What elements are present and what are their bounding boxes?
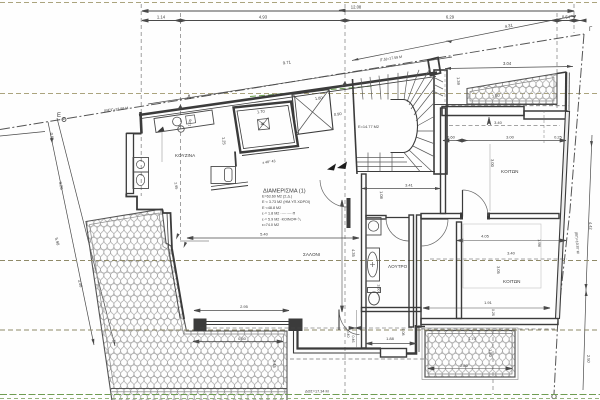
svg-text:3.00: 3.00 bbox=[506, 135, 515, 140]
svg-text:ΛOYTPO: ΛOYTPO bbox=[388, 264, 408, 269]
svg-text:1.14: 1.14 bbox=[157, 14, 166, 19]
svg-text:0.40: 0.40 bbox=[346, 330, 350, 337]
svg-text:0.25: 0.25 bbox=[491, 309, 495, 316]
svg-text:KOYZINA: KOYZINA bbox=[175, 153, 196, 158]
svg-text:2.50: 2.50 bbox=[586, 355, 591, 364]
svg-text:1.08: 1.08 bbox=[379, 191, 384, 200]
svg-text:0.50: 0.50 bbox=[238, 336, 247, 341]
svg-text:3.05: 3.05 bbox=[496, 266, 501, 275]
svg-text:ε=74.0 M2: ε=74.0 M2 bbox=[262, 223, 279, 227]
svg-text:1.88: 1.88 bbox=[386, 336, 395, 341]
svg-text:E: E bbox=[57, 113, 61, 119]
svg-text:0.46: 0.46 bbox=[351, 335, 355, 342]
svg-text:1.50: 1.50 bbox=[488, 349, 493, 358]
svg-text:6.29: 6.29 bbox=[446, 14, 455, 19]
svg-text:12.08: 12.08 bbox=[351, 5, 362, 10]
svg-text:E=14.77 M2: E=14.77 M2 bbox=[358, 124, 379, 129]
svg-text:1.70: 1.70 bbox=[257, 109, 266, 115]
svg-text:0.60: 0.60 bbox=[447, 135, 456, 140]
svg-text:ε·= 1.8 M2 ··········Π: ε·= 1.8 M2 ··········Π bbox=[262, 212, 296, 216]
svg-text:3.40: 3.40 bbox=[494, 120, 503, 125]
svg-text:ΔΘΣ=17.34 M: ΔΘΣ=17.34 M bbox=[305, 390, 329, 394]
svg-text:4.42: 4.42 bbox=[588, 222, 593, 231]
svg-text:1.08: 1.08 bbox=[401, 328, 405, 335]
svg-text:E=63.60 M2 (Σ.Δ.): E=63.60 M2 (Σ.Δ.) bbox=[262, 195, 292, 199]
svg-text:3.60: 3.60 bbox=[376, 284, 380, 291]
svg-text:E·= 3.73 M2 (HΜ.ΥΠ.XΩPOI): E·= 3.73 M2 (HΜ.ΥΠ.XΩPOI) bbox=[262, 200, 310, 204]
svg-text:1.39: 1.39 bbox=[456, 77, 461, 86]
svg-text:KOITΩN: KOITΩN bbox=[501, 169, 518, 174]
svg-text:1.70: 1.70 bbox=[468, 336, 477, 341]
svg-text:ΣΑΛONI: ΣΑΛONI bbox=[303, 252, 320, 257]
svg-text:3.40: 3.40 bbox=[507, 251, 516, 256]
svg-text:3.04: 3.04 bbox=[503, 61, 512, 66]
svg-text:E·=48.8 M2: E·=48.8 M2 bbox=[262, 206, 281, 210]
svg-text:3.41: 3.41 bbox=[405, 183, 414, 188]
svg-text:5.40: 5.40 bbox=[260, 232, 269, 237]
svg-text:ε·= 5.9 M2 ·KOINOΦ·°⁄₂: ε·= 5.9 M2 ·KOINOΦ·°⁄₂ bbox=[262, 217, 302, 221]
svg-text:3.00: 3.00 bbox=[490, 159, 495, 168]
svg-text:0.25: 0.25 bbox=[554, 135, 563, 140]
svg-text:4.35: 4.35 bbox=[351, 249, 356, 258]
svg-text:4.05: 4.05 bbox=[481, 234, 490, 239]
svg-text:2.95: 2.95 bbox=[240, 304, 249, 309]
svg-text:4.93: 4.93 bbox=[259, 14, 268, 19]
svg-text:2.45: 2.45 bbox=[272, 360, 277, 369]
svg-text:KOITΩN: KOITΩN bbox=[503, 279, 520, 284]
svg-text:1.91: 1.91 bbox=[484, 300, 493, 305]
svg-text:1.50: 1.50 bbox=[492, 92, 501, 98]
svg-text:1.25: 1.25 bbox=[221, 137, 227, 146]
svg-text:2.80: 2.80 bbox=[460, 363, 469, 368]
